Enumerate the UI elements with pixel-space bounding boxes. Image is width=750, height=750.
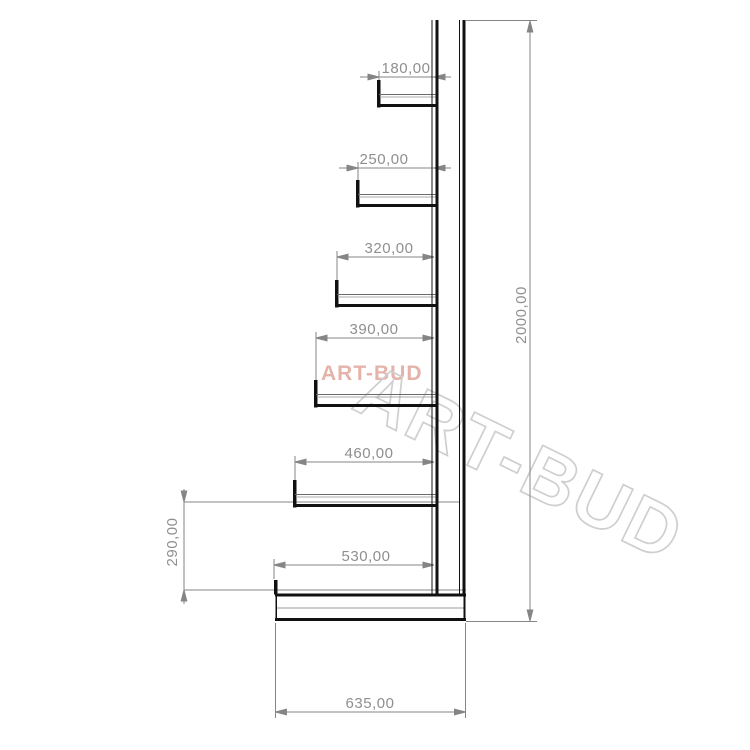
dim-label-arm-1: 180,00 xyxy=(382,60,431,77)
dim-label-base-depth: 635,00 xyxy=(346,695,395,712)
cantilever-arm-2 xyxy=(356,180,437,208)
cantilever-arm-3 xyxy=(335,280,437,308)
dim-label-total-height: 2000,00 xyxy=(513,286,530,344)
dimension-labels: 180,00 250,00 320,00 390,00 460,00 530,0… xyxy=(164,60,530,712)
dim-label-arm-5: 460,00 xyxy=(345,445,394,462)
cantilever-arm-1 xyxy=(377,80,437,108)
dim-label-arm-3: 320,00 xyxy=(365,240,414,257)
technical-drawing-page: ART-BUD ART-BUD xyxy=(0,0,750,750)
dim-label-arm-6: 530,00 xyxy=(342,548,391,565)
cantilever-arm-5 xyxy=(293,480,437,508)
cantilever-column xyxy=(432,20,466,594)
dim-label-arm-4: 390,00 xyxy=(350,321,399,338)
watermark-large: ART-BUD xyxy=(343,348,698,578)
dim-label-arm-to-base: 290,00 xyxy=(164,518,181,567)
dim-label-arm-2: 250,00 xyxy=(360,151,409,168)
technical-drawing-canvas: ART-BUD ART-BUD xyxy=(0,0,750,750)
